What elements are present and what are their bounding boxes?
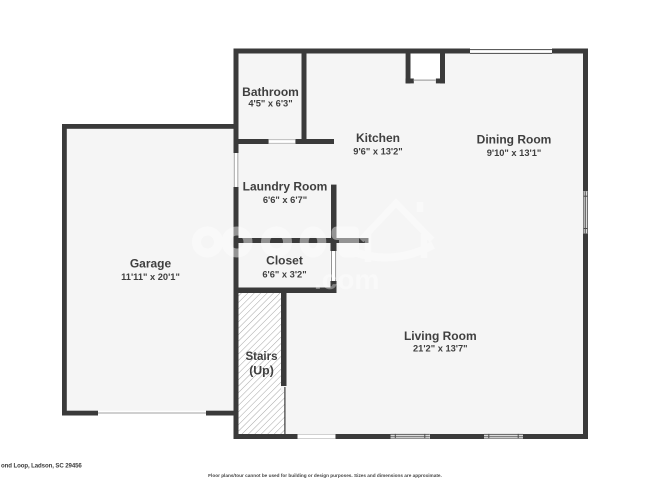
svg-text:Stairs: Stairs	[246, 351, 278, 363]
svg-text:(Up): (Up)	[249, 364, 274, 378]
svg-text:Floor plans/tour cannot be use: Floor plans/tour cannot be used for buil…	[208, 473, 442, 478]
svg-text:4'5" x 6'3": 4'5" x 6'3"	[248, 99, 292, 109]
svg-text:.com: .com	[314, 264, 379, 295]
svg-text:Closet: Closet	[266, 254, 303, 268]
svg-text:Dining Room: Dining Room	[477, 133, 552, 147]
svg-text:6'6" x 3'2": 6'6" x 3'2"	[262, 270, 306, 280]
svg-text:21'2" x 13'7": 21'2" x 13'7"	[413, 344, 468, 354]
svg-text:9'6" x 13'2": 9'6" x 13'2"	[353, 147, 402, 157]
svg-text:Laundry Room: Laundry Room	[243, 179, 328, 193]
svg-text:6'6" x 6'7": 6'6" x 6'7"	[263, 195, 307, 205]
svg-text:Kitchen: Kitchen	[356, 131, 400, 145]
svg-text:ond Loop, Ladson, SC 29456: ond Loop, Ladson, SC 29456	[1, 463, 82, 470]
svg-text:9'10" x 13'1": 9'10" x 13'1"	[487, 148, 542, 158]
svg-text:Bathroom: Bathroom	[242, 85, 299, 99]
svg-text:Garage: Garage	[130, 257, 172, 271]
svg-text:11'11" x 20'1": 11'11" x 20'1"	[121, 272, 180, 282]
svg-text:Living Room: Living Room	[404, 329, 477, 343]
